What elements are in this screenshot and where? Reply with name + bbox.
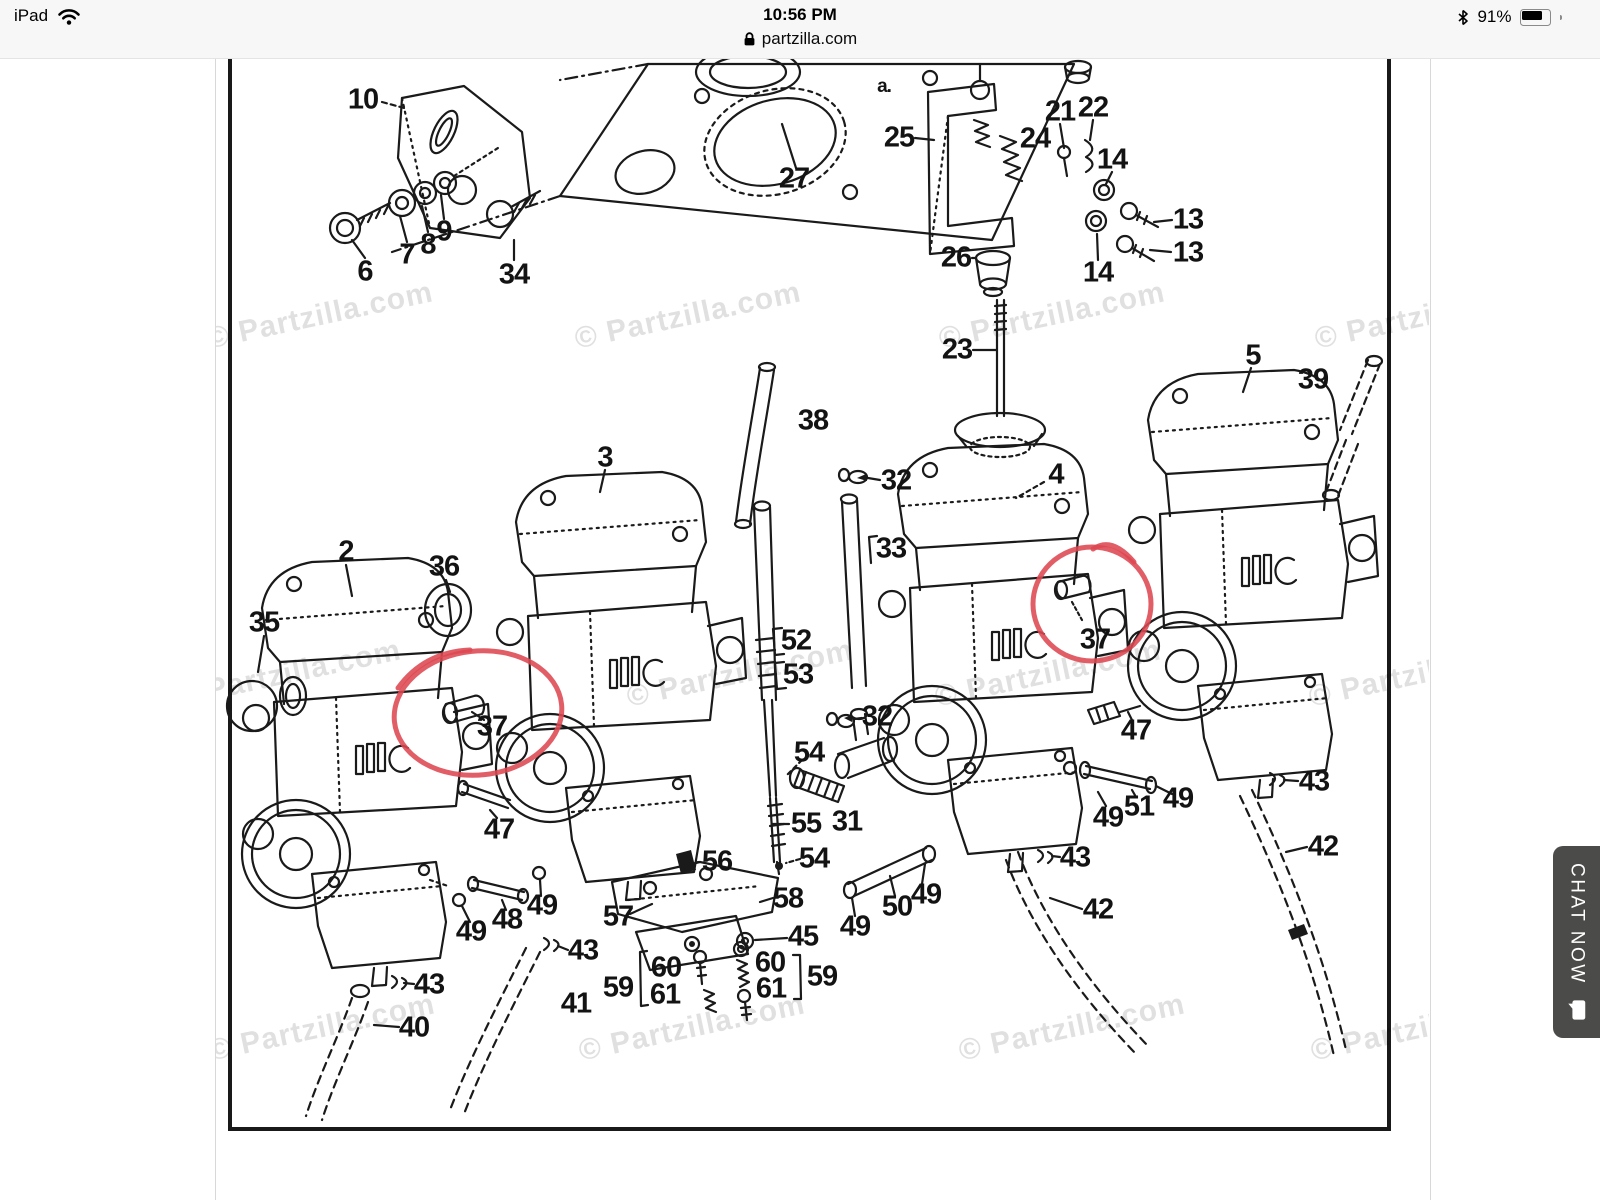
red-circle-annotations xyxy=(388,545,1151,784)
status-bar: iPad 10:56 PM partzilla.com 91% xyxy=(0,0,1600,59)
chat-bubble-icon xyxy=(1566,999,1588,1021)
battery-icon xyxy=(1520,9,1551,26)
battery-nub xyxy=(1560,15,1563,20)
red-circle-annotation xyxy=(388,643,568,784)
url-bar[interactable]: partzilla.com xyxy=(743,29,857,49)
battery-percent-label: 91% xyxy=(1477,7,1511,27)
chat-now-label: CHAT NOW xyxy=(1566,863,1588,985)
chat-now-button[interactable]: CHAT NOW xyxy=(1553,846,1600,1038)
status-center: 10:56 PM partzilla.com xyxy=(0,0,1600,52)
domain-label: partzilla.com xyxy=(762,29,857,49)
lock-icon xyxy=(743,31,756,47)
bluetooth-icon xyxy=(1457,9,1469,26)
ipad-screenshot: iPad 10:56 PM partzilla.com 91% xyxy=(0,0,1600,1200)
diagram-artwork xyxy=(0,0,1600,1200)
web-page-content: © Partzilla.com© Partzilla.com© Partzill… xyxy=(0,0,1600,1200)
clock: 10:56 PM xyxy=(0,5,1600,25)
battery-fill xyxy=(1522,11,1542,20)
status-right: 91% xyxy=(1457,7,1562,27)
